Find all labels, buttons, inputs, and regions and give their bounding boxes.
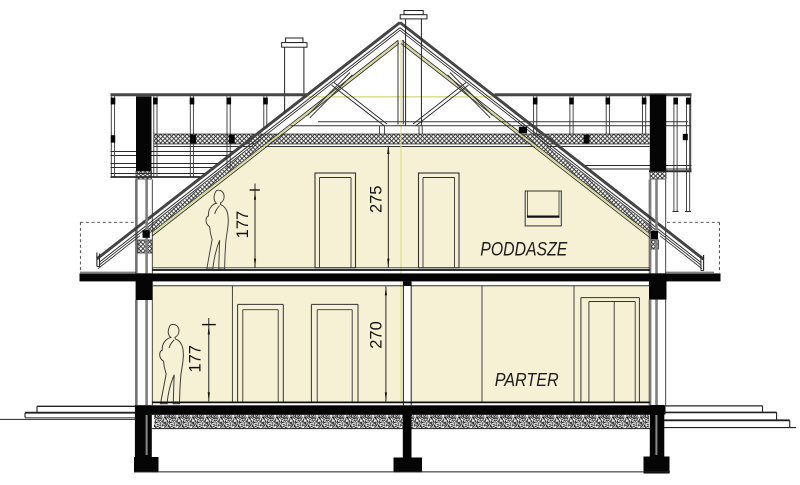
svg-text:PODDASZE: PODDASZE <box>480 240 567 261</box>
svg-text:177: 177 <box>233 211 252 239</box>
svg-text:177: 177 <box>186 345 205 373</box>
svg-text:PARTER: PARTER <box>495 369 559 390</box>
svg-text:270: 270 <box>367 321 386 349</box>
svg-text:275: 275 <box>366 186 385 214</box>
